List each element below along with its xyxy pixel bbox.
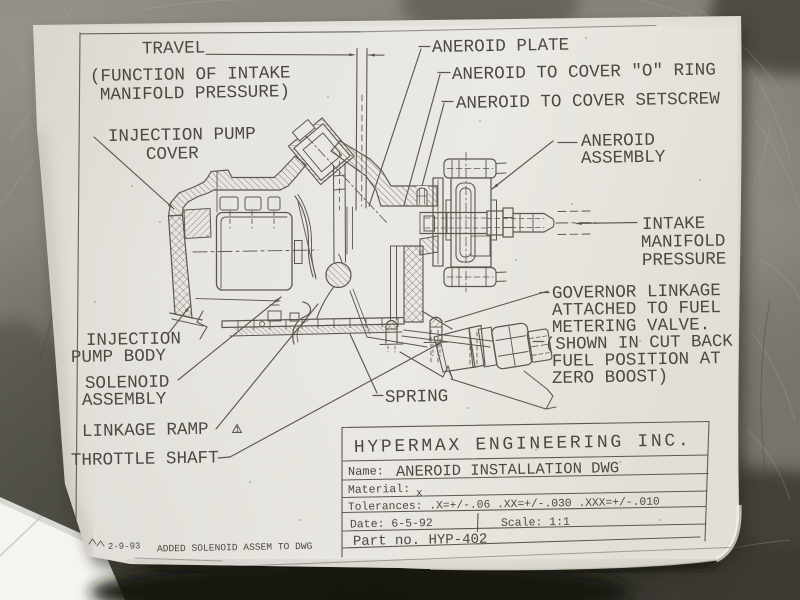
svg-text:2-9-93: 2-9-93 [108,541,141,552]
svg-text:COVER: COVER [146,144,200,165]
svg-text:x: x [416,488,423,500]
svg-text:LINKAGE RAMP: LINKAGE RAMP [82,420,209,442]
svg-text:ANEROID PLATE: ANEROID PLATE [432,36,570,58]
svg-text:THROTTLE SHAFT: THROTTLE SHAFT [71,448,219,471]
svg-text:SPRING: SPRING [385,387,449,408]
svg-text:TRAVEL: TRAVEL [142,38,206,59]
svg-text:Part no. HYP-402: Part no. HYP-402 [353,532,488,550]
svg-text:ZERO BOOST): ZERO BOOST) [552,367,668,389]
svg-text:1: 1 [235,427,240,435]
svg-text:Date: 6-5-92: Date: 6-5-92 [350,517,433,531]
svg-text:PRESSURE: PRESSURE [642,250,727,271]
svg-text:MANIFOLD PRESSURE): MANIFOLD PRESSURE) [100,82,290,105]
svg-text:PUMP BODY: PUMP BODY [71,346,167,368]
svg-text:Material:: Material: [348,483,410,497]
svg-text:ASSEMBLY: ASSEMBLY [82,390,167,411]
svg-text:Name:: Name: [348,464,384,479]
svg-text:Scale: 1:1: Scale: 1:1 [501,516,570,530]
svg-text:ASSEMBLY: ASSEMBLY [581,148,666,169]
